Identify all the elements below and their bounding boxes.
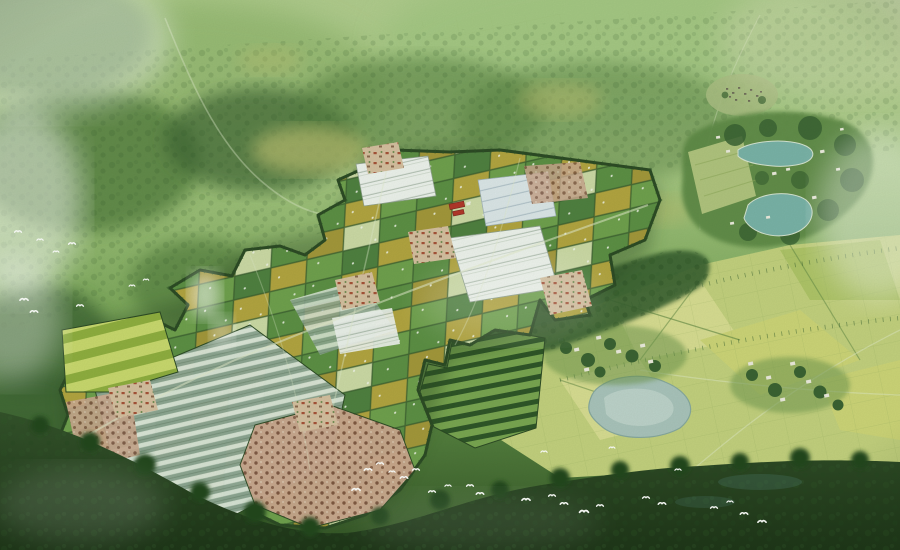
aerial-rendering <box>0 0 900 550</box>
vignette <box>0 0 900 550</box>
